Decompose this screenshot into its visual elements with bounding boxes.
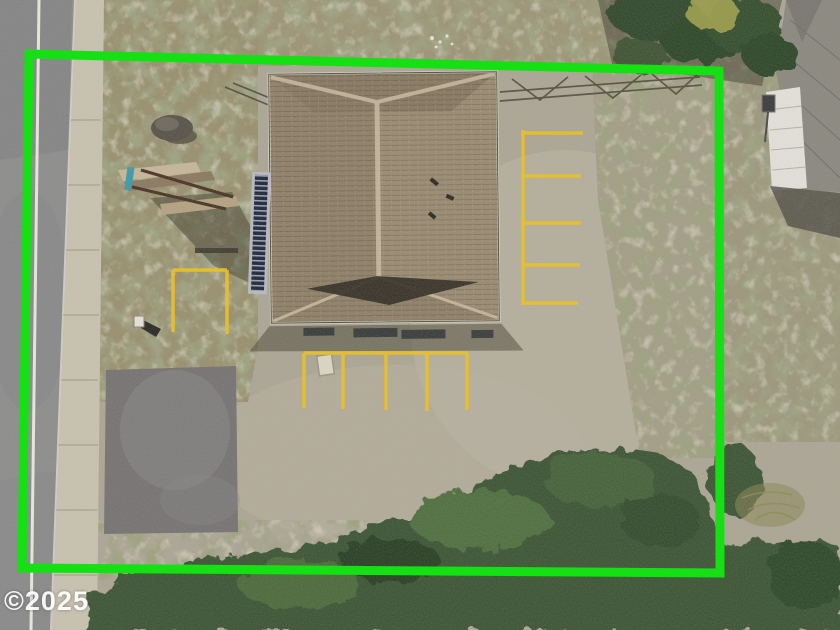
- grain-overlay: [0, 0, 840, 630]
- aerial-photo-canvas: [0, 0, 840, 630]
- aerial-property-photo: ©2025: [0, 0, 840, 630]
- watermark: ©2025: [4, 586, 89, 617]
